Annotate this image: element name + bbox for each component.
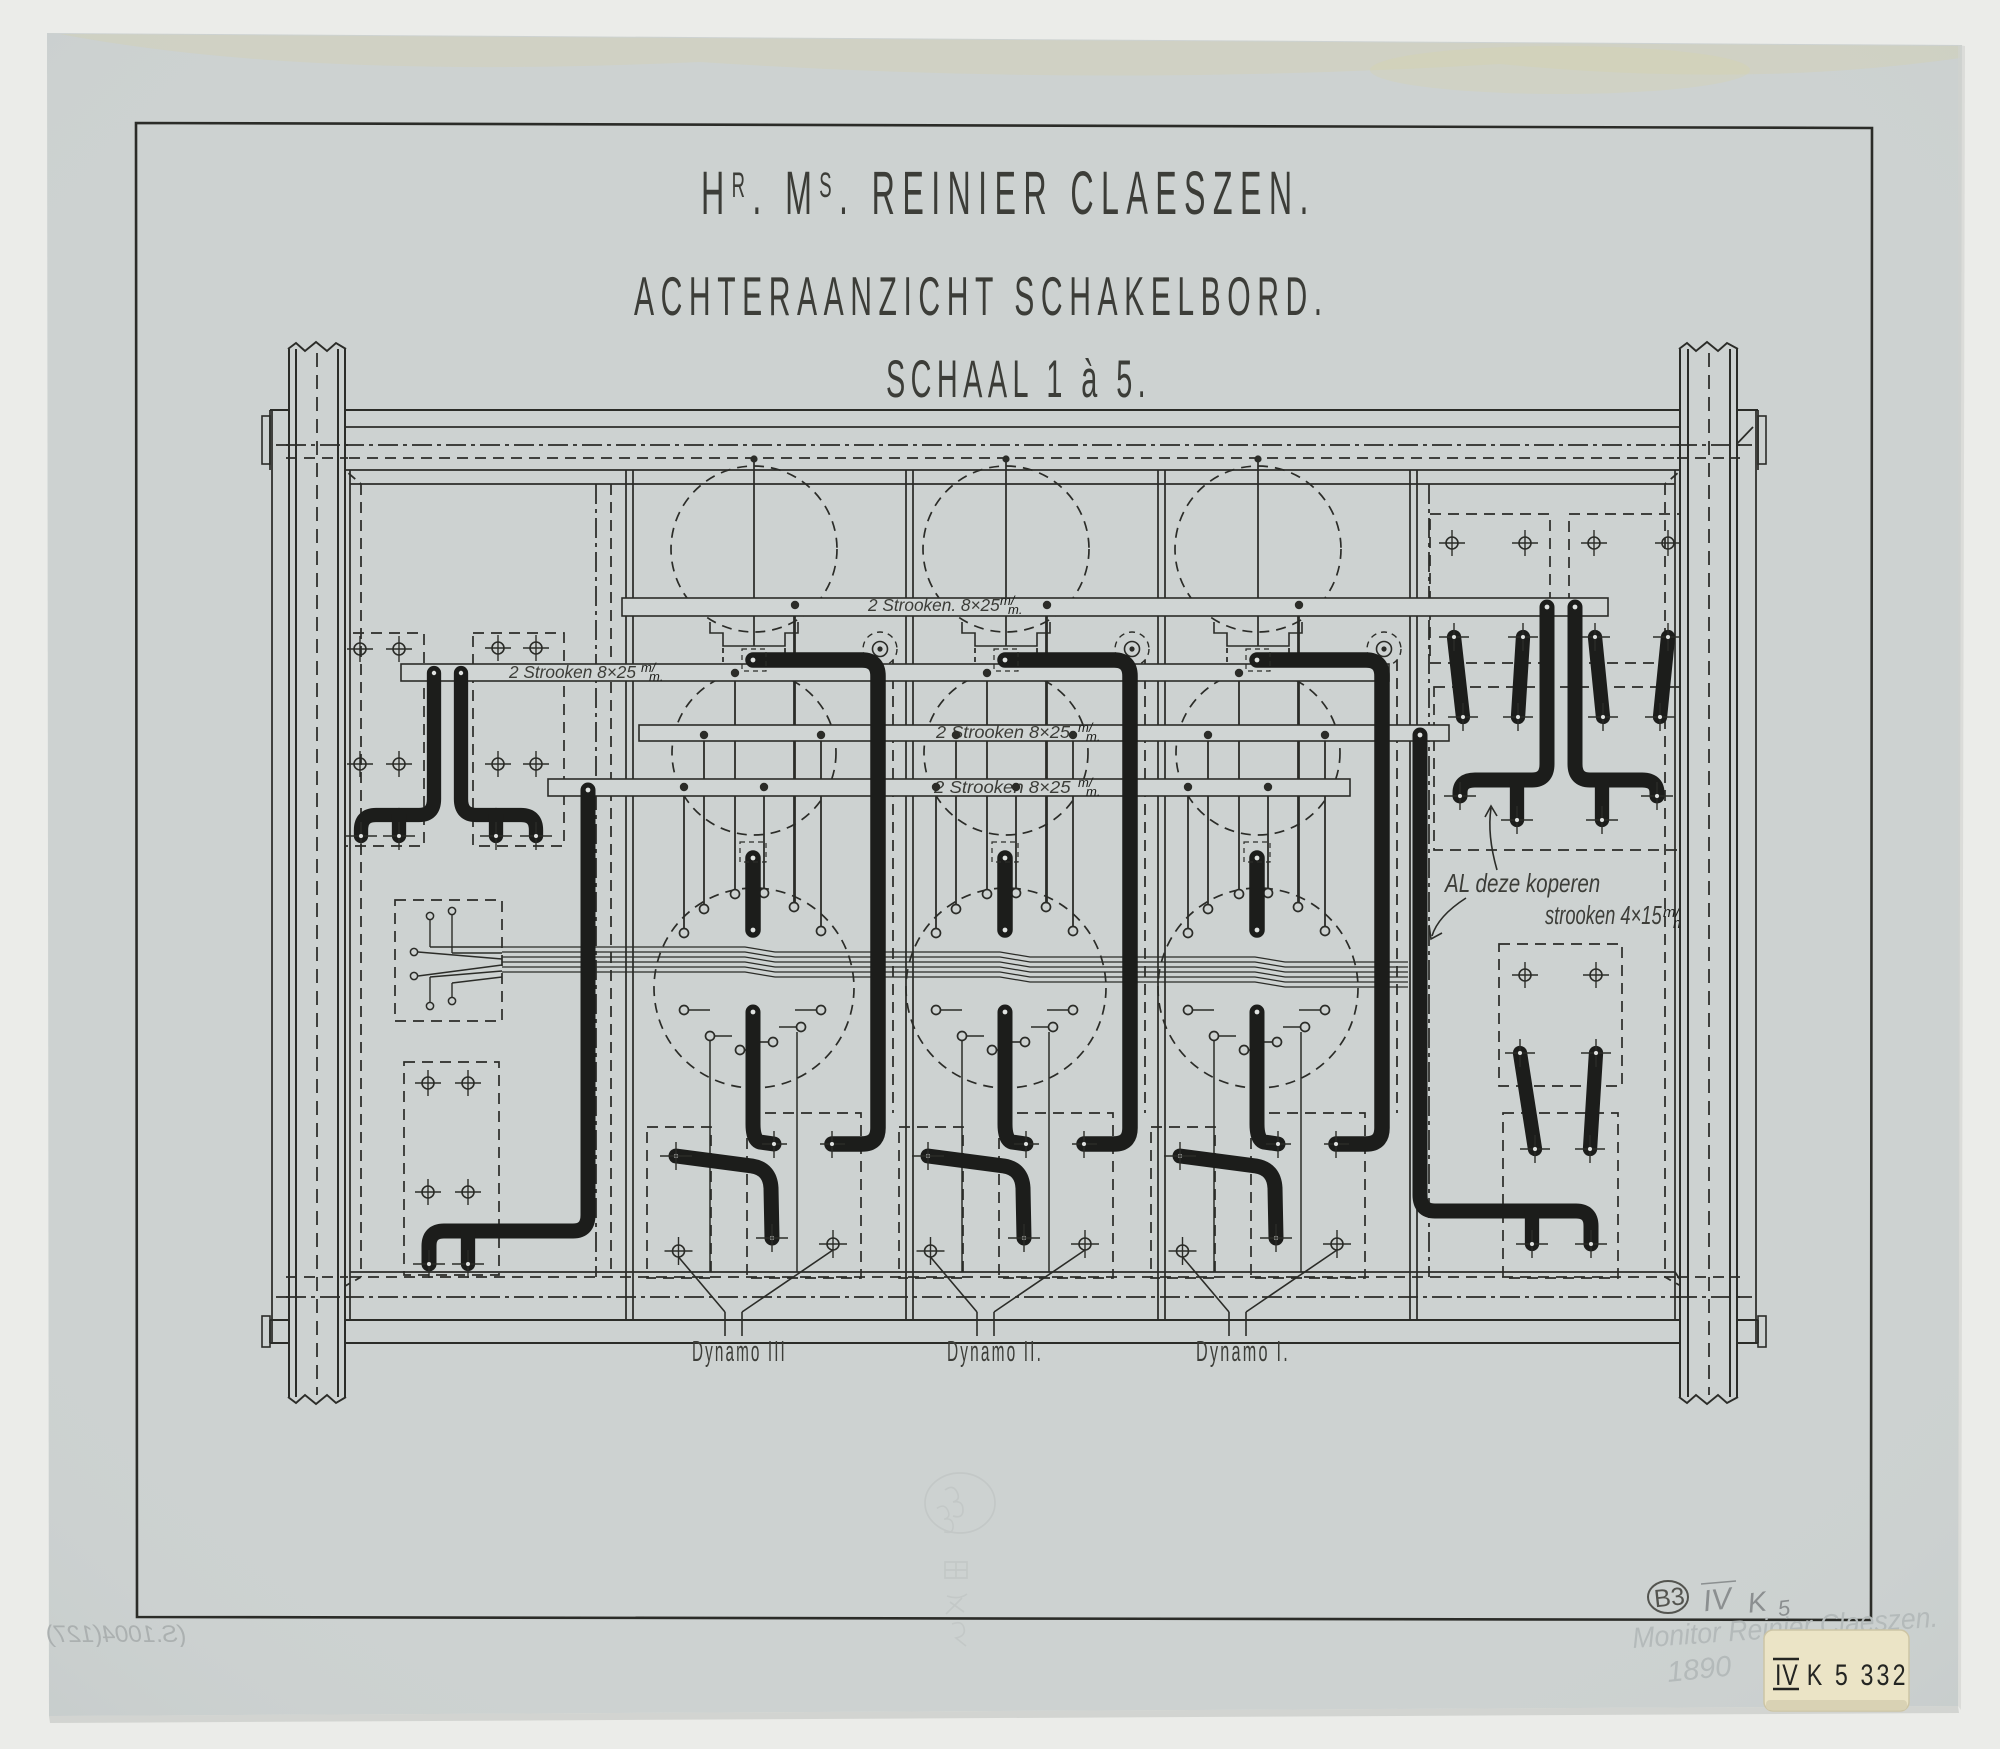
svg-text:K 5 332: K 5 332 — [1807, 1658, 1909, 1692]
svg-text:m.: m. — [1086, 784, 1100, 799]
svg-text:m.: m. — [1086, 729, 1100, 744]
svg-text:Dynamo III: Dynamo III — [692, 1335, 787, 1368]
svg-text:B3: B3 — [1653, 1582, 1686, 1613]
svg-text:m.: m. — [1008, 602, 1022, 617]
svg-text:IV: IV — [1775, 1658, 1799, 1692]
svg-text:2 Strooken. 8×25: 2 Strooken. 8×25 — [867, 595, 1000, 615]
svg-text:Dynamo II.: Dynamo II. — [947, 1335, 1043, 1367]
svg-text:1890: 1890 — [1665, 1650, 1733, 1689]
svg-text:m.: m. — [649, 669, 663, 684]
svg-text:AL deze koperen: AL deze koperen — [1443, 869, 1600, 898]
svg-text:strooken 4×15: strooken 4×15 — [1545, 901, 1662, 930]
svg-text:2 Strooken 8×25: 2 Strooken 8×25 — [508, 662, 636, 682]
svg-text:Dynamo I.: Dynamo I. — [1196, 1335, 1290, 1367]
svg-text:SCHAAL 1 à 5.: SCHAAL 1 à 5. — [886, 350, 1151, 410]
svg-text:ACHTERAANZICHT SCHAKELBORD.: ACHTERAANZICHT SCHAKELBORD. — [634, 267, 1329, 328]
svg-text:HR. MS. REINIER CLAESZEN.: HR. MS. REINIER CLAESZEN. — [701, 160, 1316, 228]
svg-text:(S.1004(127): (S.1004(127) — [46, 1621, 186, 1648]
svg-text:2 Strooken 8×25: 2 Strooken 8×25 — [933, 777, 1072, 796]
